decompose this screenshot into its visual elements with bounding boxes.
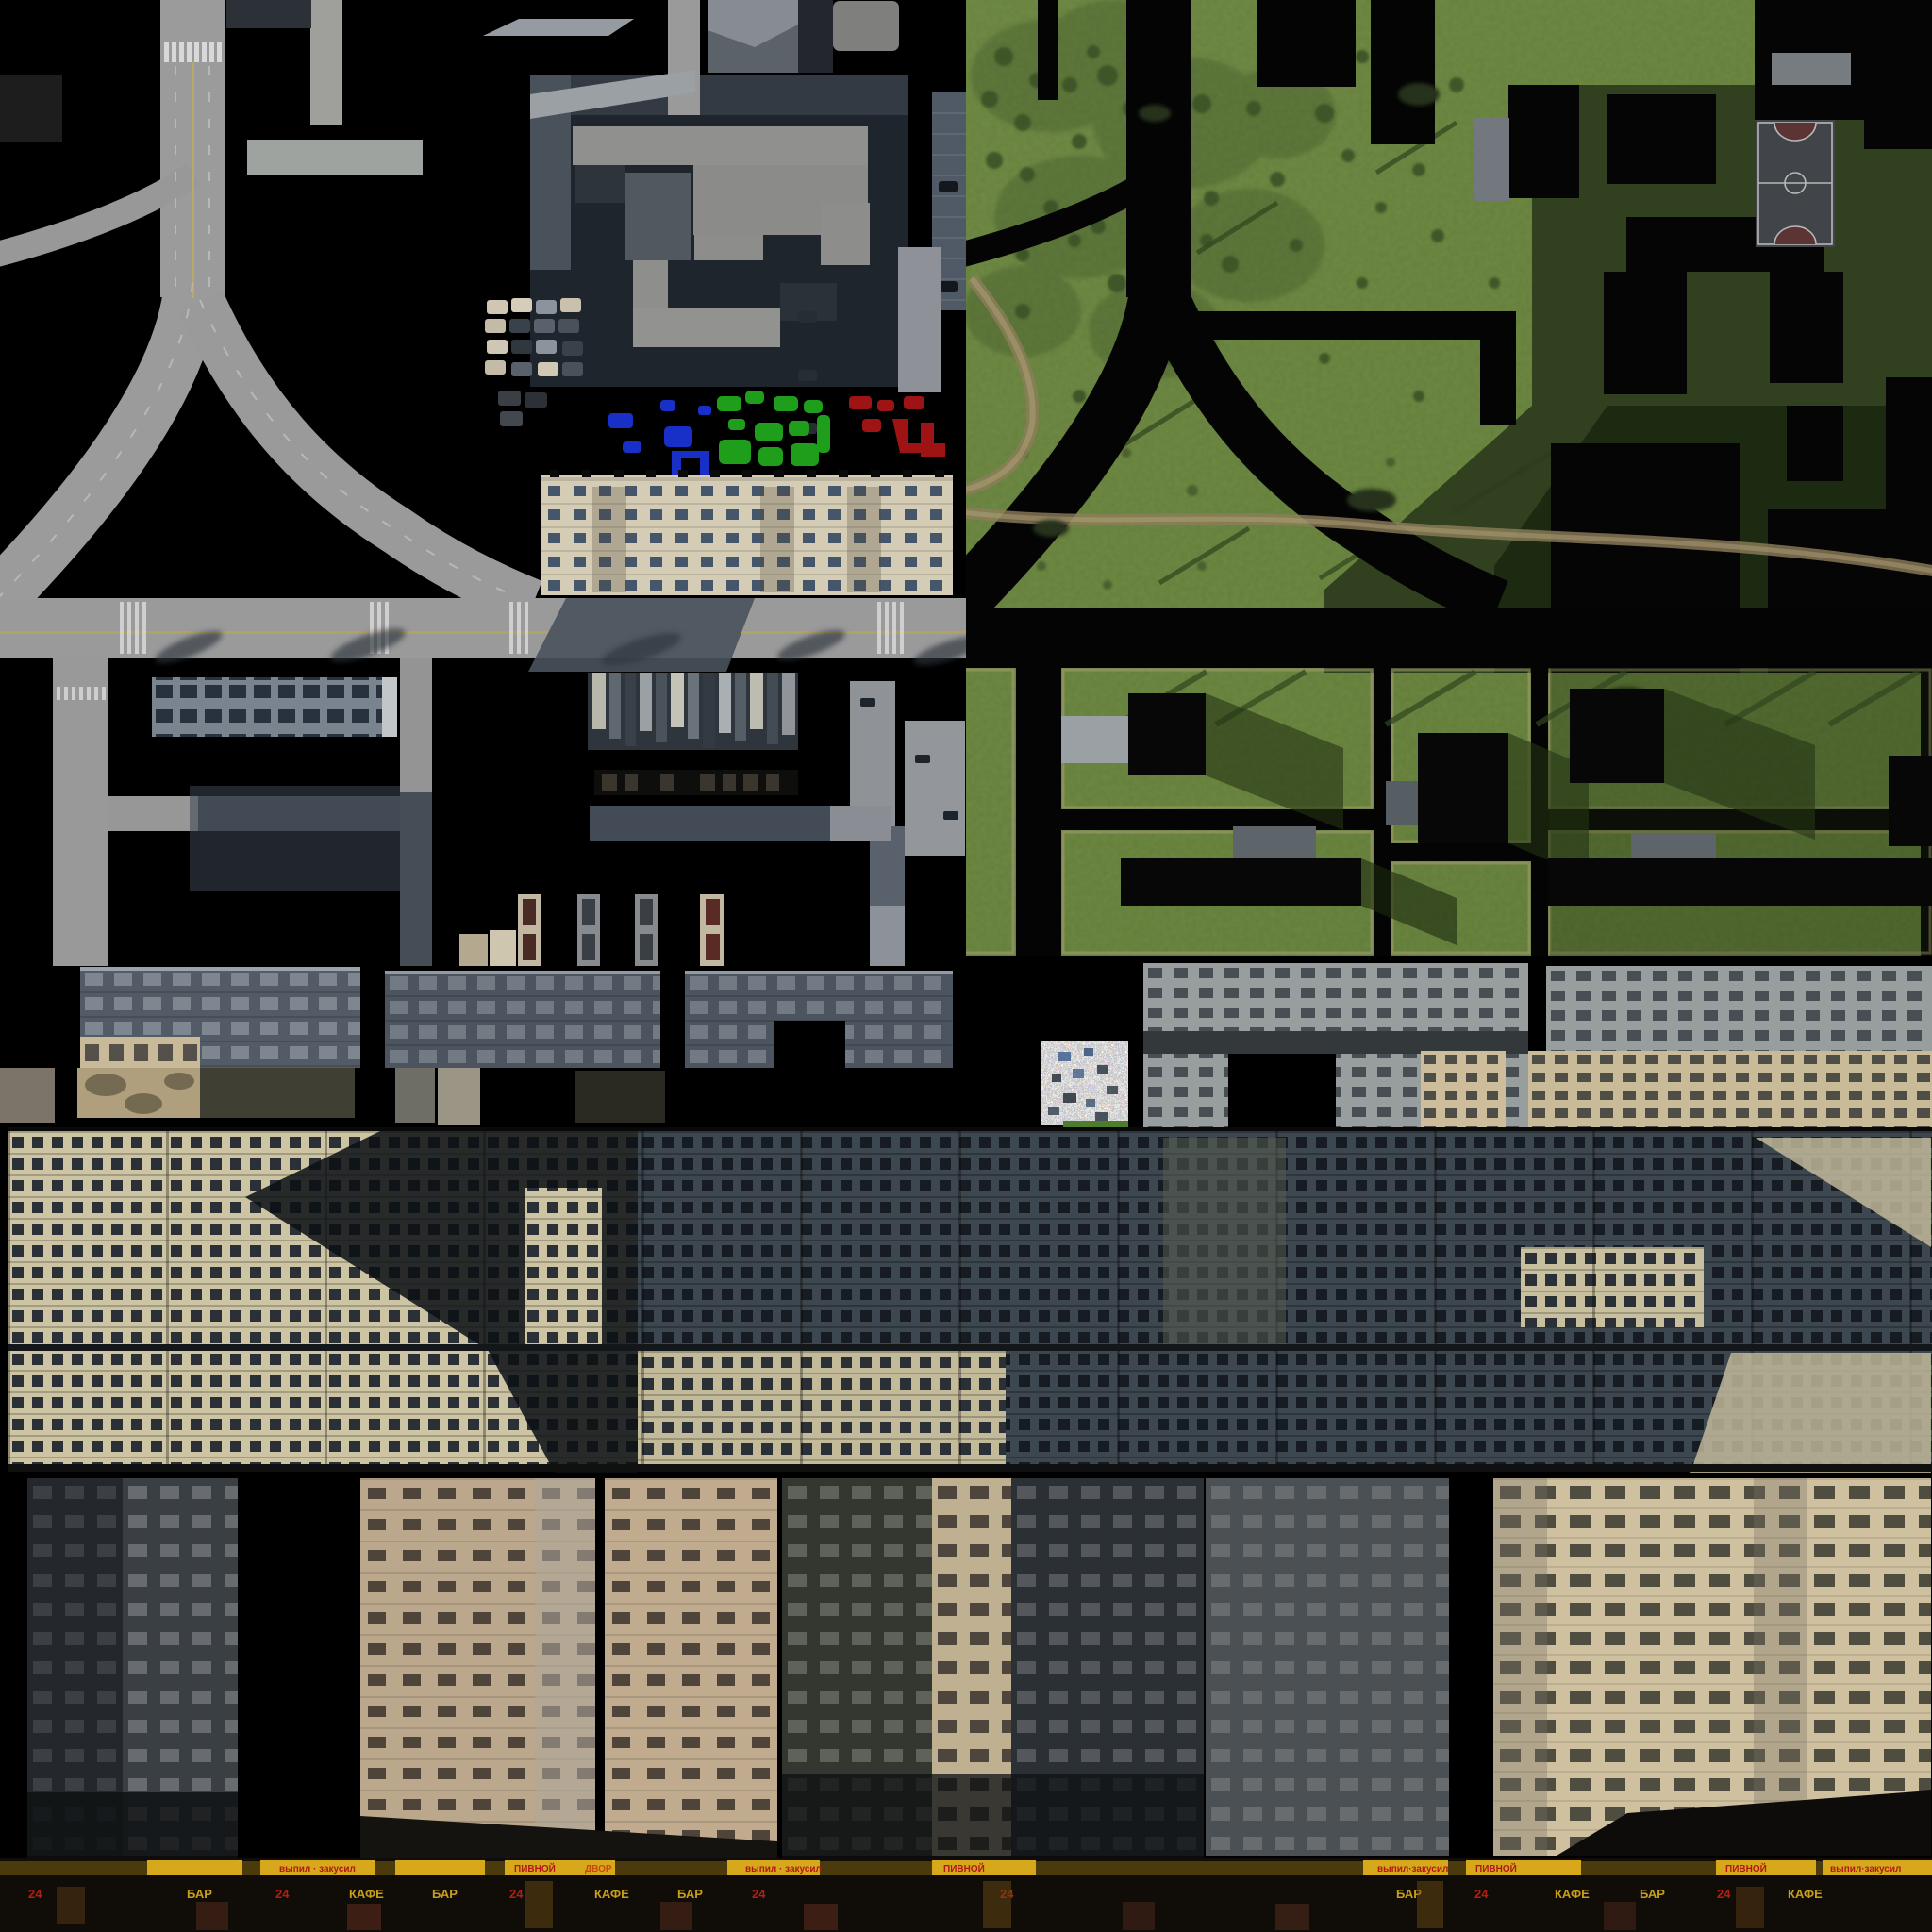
svg-text:выпил · закусил: выпил · закусил <box>745 1864 822 1874</box>
svg-text:24: 24 <box>509 1887 524 1901</box>
svg-text:ПИВНОЙ: ПИВНОЙ <box>514 1862 556 1874</box>
svg-text:выпил·закусил: выпил·закусил <box>1830 1864 1901 1874</box>
svg-text:БАР: БАР <box>187 1887 212 1901</box>
svg-text:БАР: БАР <box>1640 1887 1665 1901</box>
svg-text:БАР: БАР <box>432 1887 458 1901</box>
svg-text:КАФЕ: КАФЕ <box>1555 1887 1590 1901</box>
svg-text:24: 24 <box>1474 1887 1489 1901</box>
svg-text:выпил·закусил: выпил·закусил <box>1377 1864 1448 1874</box>
svg-text:БАР: БАР <box>677 1887 703 1901</box>
svg-text:выпил · закусил: выпил · закусил <box>279 1864 356 1874</box>
svg-text:24: 24 <box>28 1887 42 1901</box>
svg-text:24: 24 <box>752 1887 766 1901</box>
svg-text:ДВОР: ДВОР <box>585 1864 612 1874</box>
svg-text:ПИВНОЙ: ПИВНОЙ <box>943 1862 985 1874</box>
svg-text:ПИВНОЙ: ПИВНОЙ <box>1475 1862 1517 1874</box>
svg-text:КАФЕ: КАФЕ <box>594 1887 629 1901</box>
svg-text:КАФЕ: КАФЕ <box>1788 1887 1823 1901</box>
svg-text:24: 24 <box>1717 1887 1731 1901</box>
svg-text:ПИВНОЙ: ПИВНОЙ <box>1725 1862 1767 1874</box>
svg-text:КАФЕ: КАФЕ <box>349 1887 384 1901</box>
svg-text:24: 24 <box>275 1887 290 1901</box>
